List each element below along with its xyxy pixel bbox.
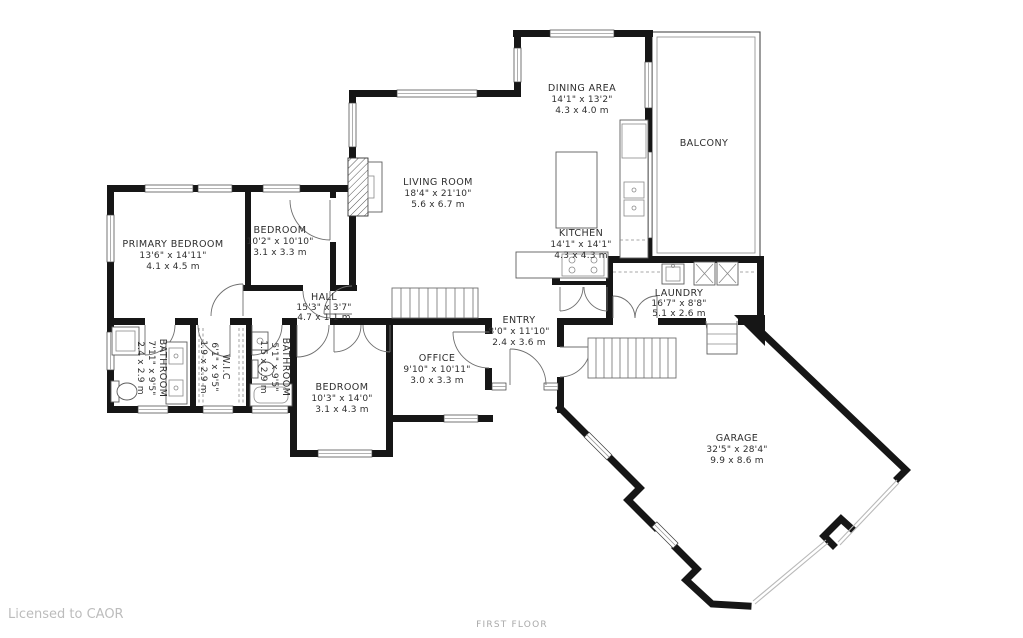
window	[252, 406, 288, 413]
room-dim-metric: 5.6 x 6.7 m	[411, 200, 465, 210]
room-dim-imperial: 7'11" x 9'5"	[146, 340, 156, 395]
label-primary-bedroom: PRIMARY BEDROOM 13'6" x 14'11" 4.1 x 4.5…	[122, 239, 223, 272]
label-laundry: LAUNDRY 16'7" x 8'8" 5.1 x 2.6 m	[651, 288, 706, 319]
pantry-bifold-doors	[560, 287, 607, 311]
room-dim-metric: 9.9 x 8.6 m	[710, 456, 764, 466]
window	[645, 62, 652, 108]
room-dim-imperial: 15'3" x 3'7"	[296, 303, 351, 313]
room-name: BATHROOM	[157, 339, 168, 398]
room-dim-imperial: 10'2" x 10'10"	[246, 237, 313, 247]
room-dim-imperial: 13'6" x 14'11"	[139, 251, 206, 261]
window	[514, 48, 521, 82]
washer	[694, 262, 715, 285]
room-name: PRIMARY BEDROOM	[122, 239, 223, 250]
room-dim-metric: 4.7 x 1.1 m	[297, 313, 351, 323]
shower	[112, 327, 139, 355]
room-dim-metric: 4.3 x 4.0 m	[555, 106, 609, 116]
room-dim-imperial: 14'1" x 13'2"	[551, 95, 612, 105]
bedroom3-door	[297, 325, 329, 357]
label-dining-area: DINING AREA 14'1" x 13'2" 4.3 x 4.0 m	[548, 83, 616, 116]
room-name: BALCONY	[680, 138, 729, 149]
room-dim-imperial: 16'7" x 8'8"	[651, 299, 706, 309]
floorplan-page: PRIMARY BEDROOM 13'6" x 14'11" 4.1 x 4.5…	[0, 0, 1023, 638]
double-vanity	[166, 342, 187, 404]
room-dim-imperial: 18'4" x 21'10"	[404, 189, 471, 199]
room-name: GARAGE	[716, 433, 759, 444]
window	[349, 103, 356, 147]
room-dim-metric: 2.4 x 3.6 m	[492, 338, 546, 348]
window	[203, 406, 233, 413]
room-dim-metric: 3.0 x 3.3 m	[410, 376, 464, 386]
window	[397, 90, 477, 97]
dryer	[717, 262, 738, 285]
room-dim-imperial: 6'1" x 9'5"	[209, 342, 219, 391]
room-dim-imperial: 9'10" x 10'11"	[403, 365, 470, 375]
laundry-fixtures	[613, 262, 756, 285]
label-bedroom-2: BEDROOM 10'2" x 10'10" 3.1 x 3.3 m	[246, 225, 313, 258]
room-dim-imperial: 10'3" x 14'0"	[311, 394, 372, 404]
window	[318, 450, 372, 457]
room-dim-imperial: 14'1" x 14'1"	[550, 240, 611, 250]
room-name: W.I.C	[220, 354, 231, 380]
room-name: HALL	[311, 292, 337, 303]
room-name: BEDROOM	[316, 382, 369, 393]
room-name: LIVING ROOM	[403, 177, 473, 188]
kitchen-island	[556, 152, 597, 228]
floor-label: FIRST FLOOR	[476, 620, 548, 630]
room-dim-metric: 3.1 x 3.3 m	[253, 248, 307, 258]
label-bedroom-3: BEDROOM 10'3" x 14'0" 3.1 x 4.3 m	[311, 382, 372, 415]
label-entry: ENTRY 8'0" x 11'10" 2.4 x 3.6 m	[488, 315, 549, 348]
room-name: ENTRY	[502, 315, 535, 326]
primary-bedroom-door	[211, 284, 243, 316]
window	[198, 185, 232, 192]
label-wic: W.I.C 6'1" x 9'5" 1.9 x 2.9 m	[198, 340, 231, 394]
room-dim-imperial: 8'0" x 11'10"	[488, 327, 549, 337]
sidelight	[492, 383, 506, 390]
room-dim-metric: 3.1 x 4.3 m	[315, 405, 369, 415]
room-dim-metric: 1.9 x 2.9 m	[198, 340, 208, 394]
garage-entry-steps	[707, 324, 737, 354]
window	[550, 30, 614, 37]
main-stairs	[392, 288, 478, 318]
label-bathroom-1: BATHROOM 7'11" x 9'5" 2.4 x 2.9 m	[135, 339, 168, 398]
bedroom3-closet-doors	[334, 325, 390, 352]
room-dim-imperial: 5'1" x 9'5"	[269, 342, 279, 391]
label-balcony: BALCONY	[680, 138, 729, 149]
entry-garage-door	[560, 347, 590, 377]
label-hall: HALL 15'3" x 3'7" 4.7 x 1.1 m	[296, 292, 351, 323]
room-name: KITCHEN	[559, 228, 603, 239]
room-name: DINING AREA	[548, 83, 616, 94]
basement-stairs	[588, 338, 676, 378]
label-kitchen: KITCHEN 14'1" x 14'1" 4.3 x 4.3 m	[550, 228, 611, 261]
license-watermark: Licensed to CAOR	[8, 607, 124, 622]
window	[263, 185, 300, 192]
room-name: BATHROOM	[280, 338, 291, 397]
room-name: OFFICE	[419, 353, 456, 364]
room-dim-metric: 2.4 x 2.9 m	[135, 341, 145, 395]
room-dim-metric: 4.3 x 4.3 m	[554, 251, 608, 261]
room-dim-metric: 1.5 x 2.9 m	[258, 340, 268, 394]
front-door	[510, 349, 546, 385]
window	[107, 215, 114, 262]
label-office: OFFICE 9'10" x 10'11" 3.0 x 3.3 m	[403, 353, 470, 386]
room-dim-metric: 4.1 x 4.5 m	[146, 262, 200, 272]
room-dim-metric: 5.1 x 2.6 m	[652, 309, 706, 319]
fireplace	[348, 158, 382, 216]
window	[138, 406, 168, 413]
window	[444, 415, 478, 422]
window	[145, 185, 193, 192]
room-name: BEDROOM	[254, 225, 307, 236]
floorplan-drawing: PRIMARY BEDROOM 13'6" x 14'11" 4.1 x 4.5…	[0, 0, 1023, 638]
toilet	[111, 381, 137, 402]
office-door	[453, 332, 489, 368]
room-dim-imperial: 32'5" x 28'4"	[706, 445, 767, 455]
label-living-room: LIVING ROOM 18'4" x 21'10" 5.6 x 6.7 m	[403, 177, 473, 210]
laundry-sink	[662, 264, 684, 284]
room-name: LAUNDRY	[655, 288, 703, 299]
label-bathroom-2: BATHROOM 5'1" x 9'5" 1.5 x 2.9 m	[258, 338, 291, 397]
